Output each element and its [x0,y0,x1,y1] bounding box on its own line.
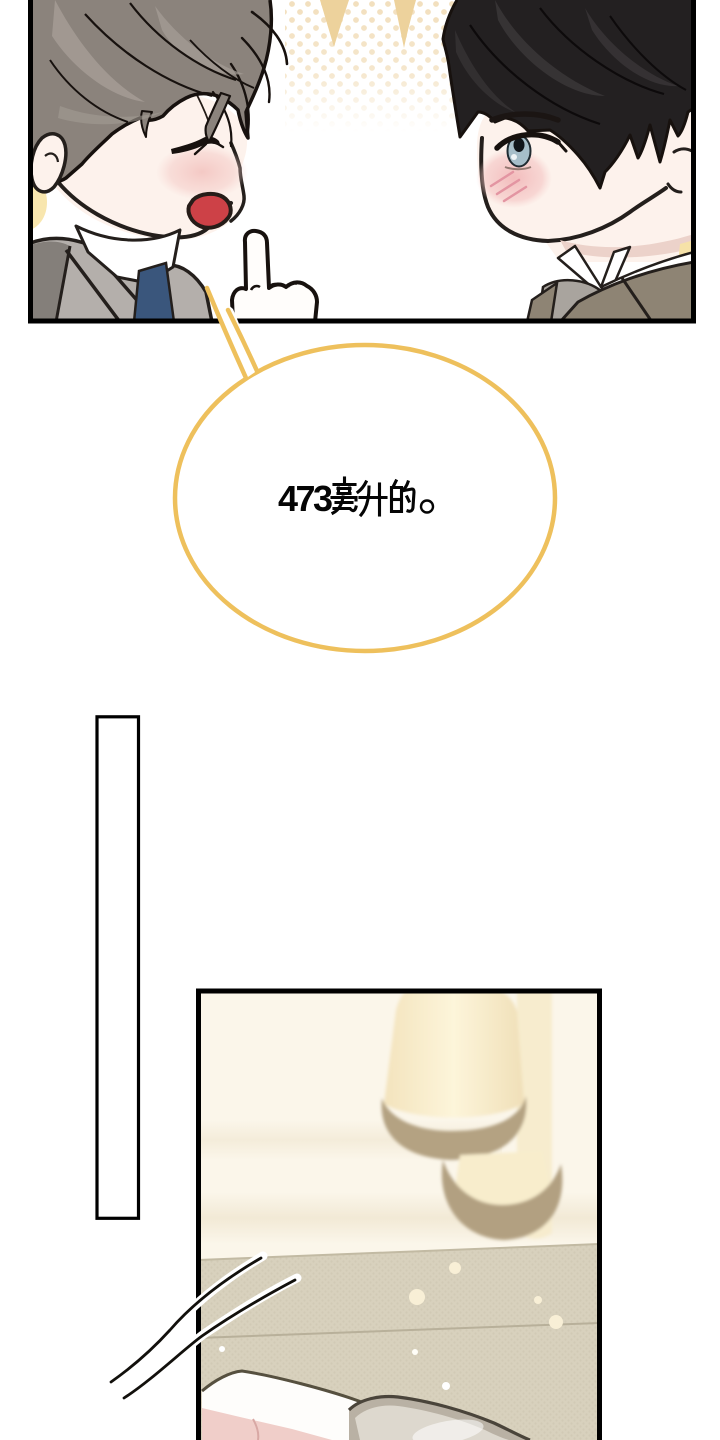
svg-text:473: 473 [278,478,332,519]
